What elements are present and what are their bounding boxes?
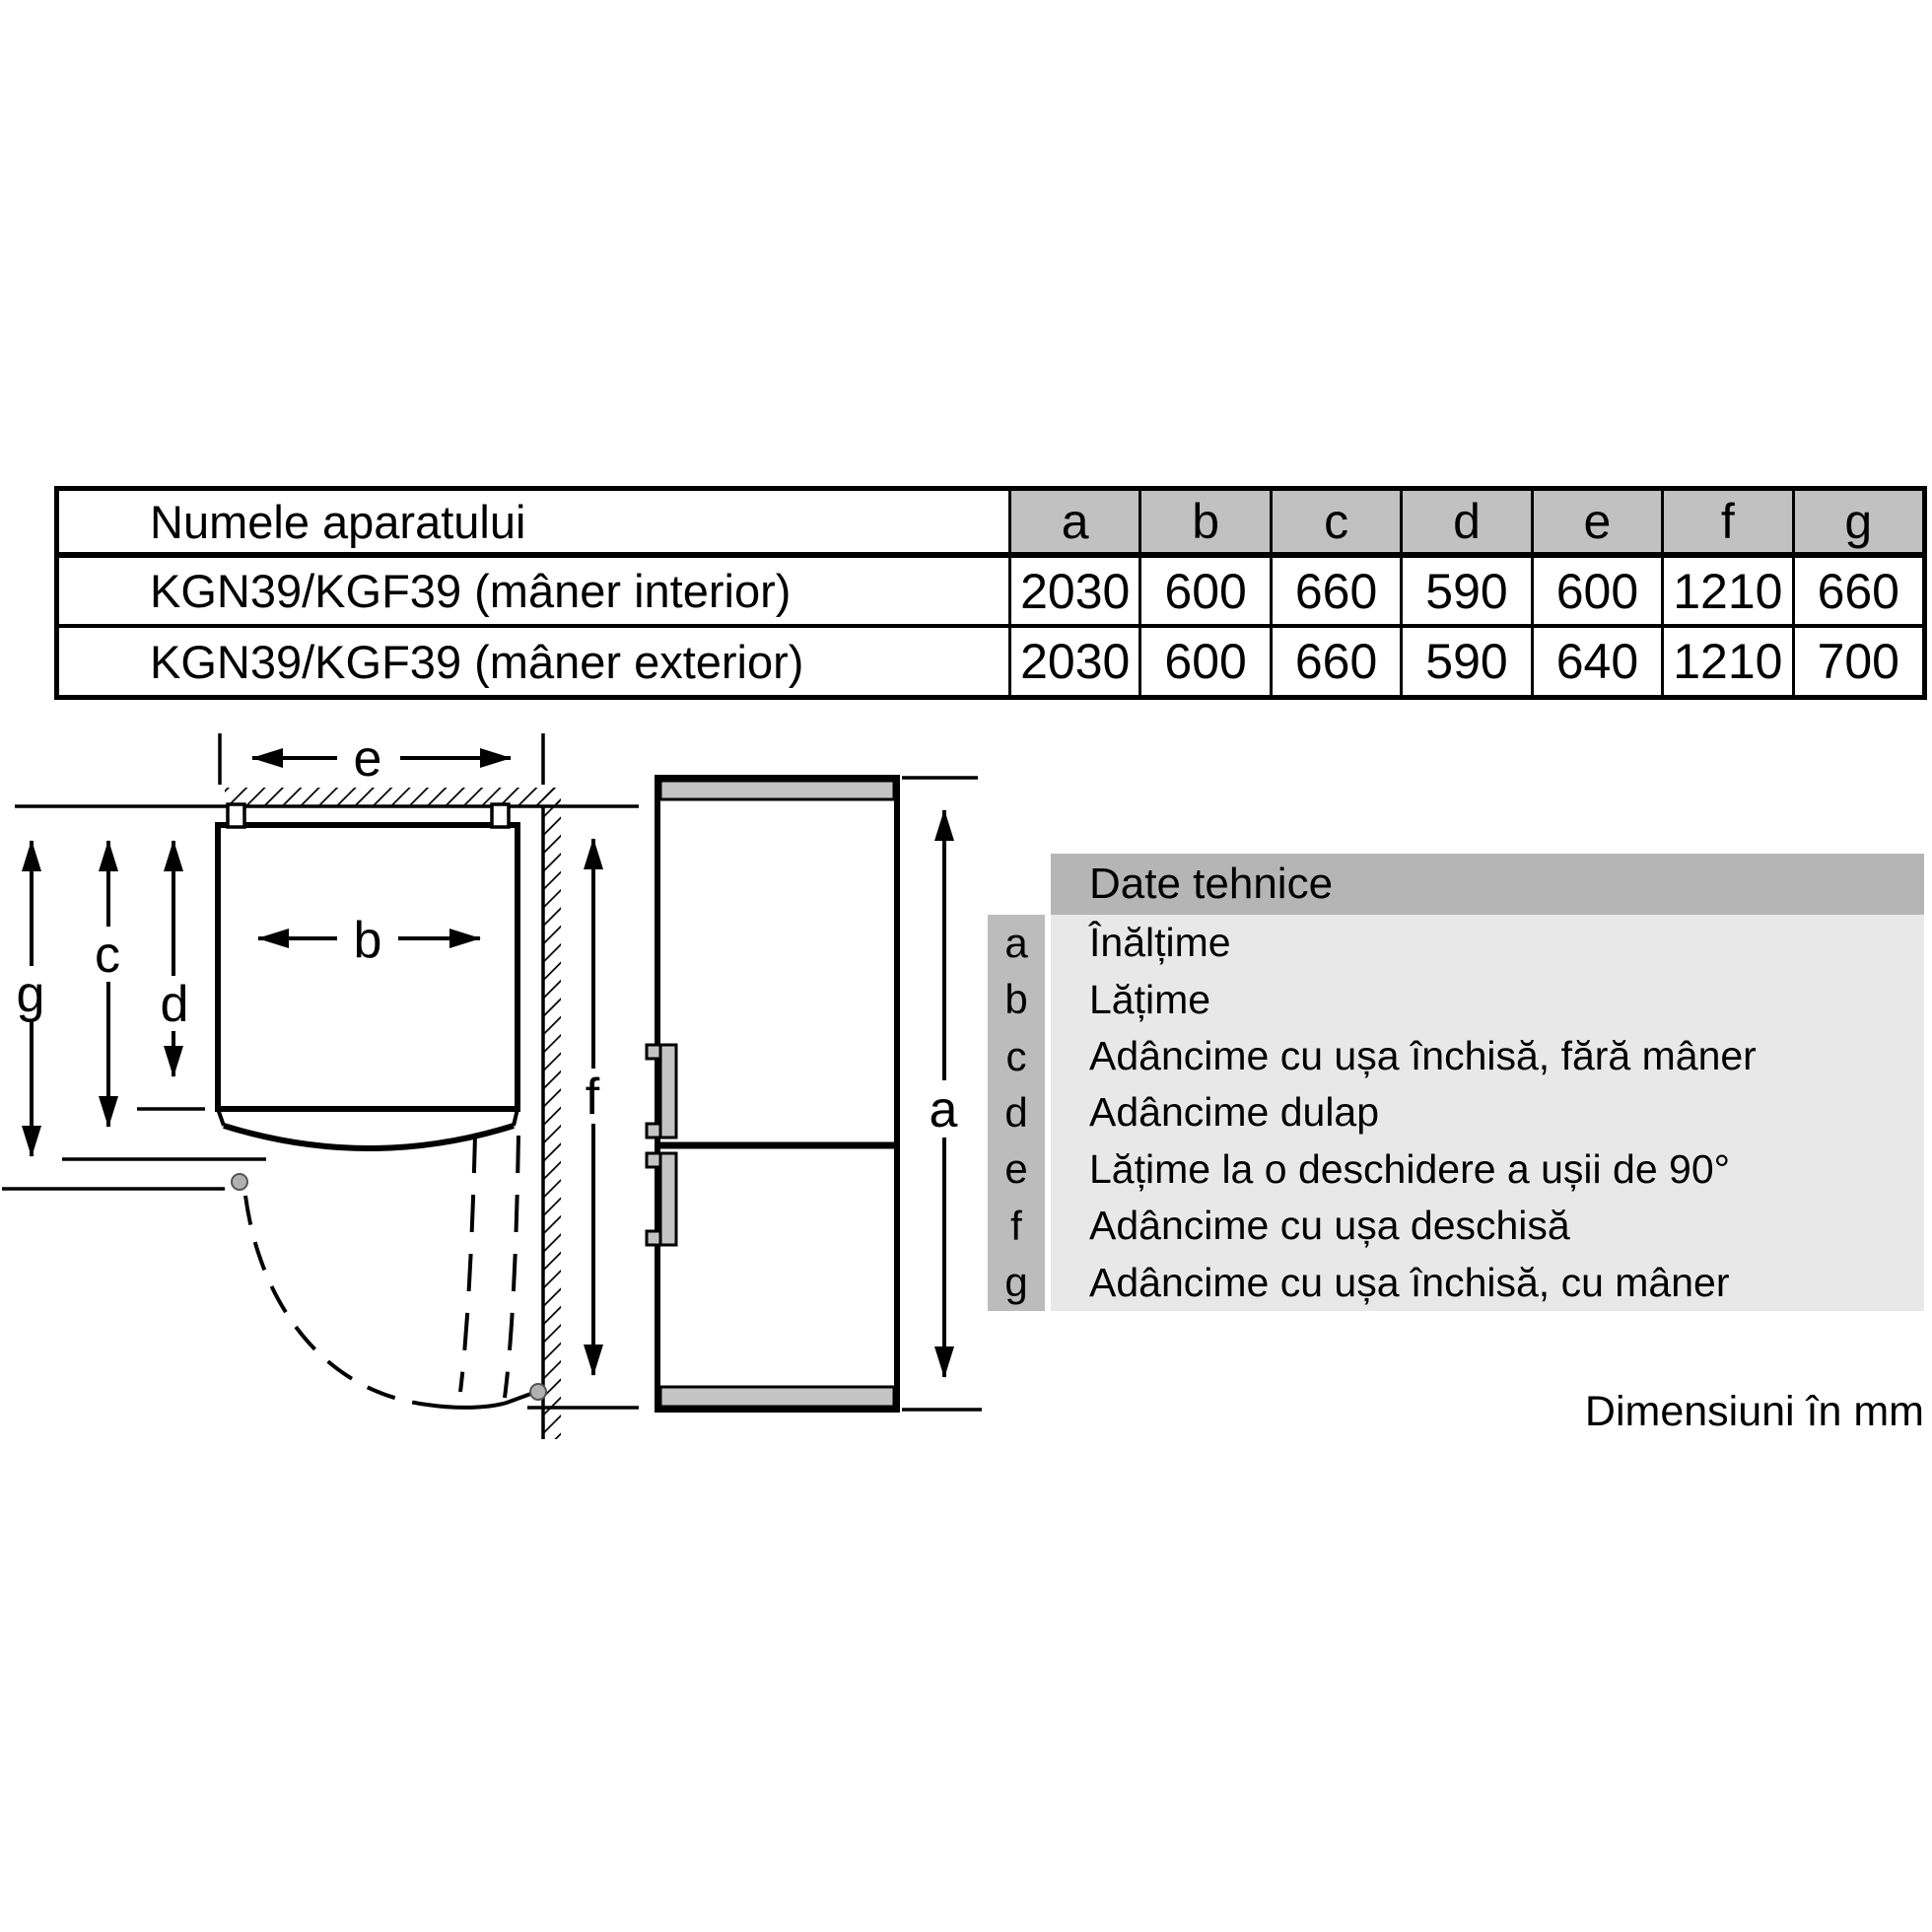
door-hinge-dot-closed [232,1174,247,1190]
legend-label: Adâncime cu ușa închisă, fără mâner [1051,1028,1924,1084]
table-cell: 2030 [1008,624,1138,695]
dim-label-b: b [354,912,382,969]
legend-label: Adâncime cu ușa deschisă [1051,1198,1924,1254]
hinge-pin-left [228,804,244,827]
table-cell: 660 [1270,554,1400,624]
table-header-a: a [1008,491,1138,554]
dimension-drawing: e b g c d f a [0,0,986,1498]
table-cell: 1210 [1661,624,1791,695]
hinge-pin-right [492,804,509,827]
fridge-front-view [647,778,897,1410]
fridge-bottom-band [660,1387,894,1407]
table-header-d: d [1400,491,1530,554]
table-cell: 590 [1400,624,1530,695]
legend-key: e [988,1141,1045,1198]
legend-key: g [988,1255,1045,1311]
legend-key: b [988,971,1045,1027]
dim-label-e: e [354,730,382,788]
legend-label: Lățime [1051,971,1924,1027]
dim-label-c: c [95,927,120,984]
door-closed-front [224,1126,514,1148]
upper-door-handle [647,1045,676,1138]
table-cell: 660 [1792,554,1922,624]
table-header-e: e [1531,491,1661,554]
table-cell: 2030 [1008,554,1138,624]
legend-key-column: a b c d e f g [988,915,1045,1311]
legend-key: d [988,1084,1045,1140]
page: Numele aparatului a b c d e f g KGN39/KG… [0,0,1932,1932]
dim-label-d: d [161,976,189,1033]
fridge-top-band [660,781,894,799]
door-open-left-edge [460,1136,475,1392]
legend-key: f [988,1198,1045,1254]
table-cell: 590 [1400,554,1530,624]
dim-label-f: f [586,1069,600,1126]
table-cell: 640 [1531,624,1661,695]
legend-label: Înălțime [1051,915,1924,971]
legend-label: Lățime la o deschidere a ușii de 90° [1051,1141,1924,1198]
legend-label: Adâncime dulap [1051,1084,1924,1140]
table-header-g: g [1792,491,1922,554]
door-open-bottom [427,1392,536,1408]
dim-label-a: a [930,1081,958,1138]
lower-door-handle [647,1153,676,1245]
table-cell: 600 [1531,554,1661,624]
legend-labels: Înălțime Lățime Adâncime cu ușa închisă,… [1051,915,1924,1311]
door-swing-arc [245,1196,427,1405]
table-cell: 700 [1792,624,1922,695]
dim-label-g: g [17,966,45,1023]
table-header-c: c [1270,491,1400,554]
units-note: Dimensiuni în mm [1548,1388,1924,1436]
legend-key: a [988,915,1045,971]
door-hinge-dot-open [530,1384,546,1400]
table-cell: 660 [1270,624,1400,695]
table-header-f: f [1661,491,1791,554]
legend-key: c [988,1028,1045,1084]
legend-title: Date tehnice [1051,854,1924,915]
table-cell: 600 [1138,554,1269,624]
legend-label: Adâncime cu ușa închisă, cu mâner [1051,1255,1924,1311]
fridge-top-view [218,804,546,1408]
door-open-right-edge [505,1136,518,1398]
table-header-b: b [1138,491,1269,554]
table-cell: 600 [1138,624,1269,695]
table-cell: 1210 [1661,554,1791,624]
